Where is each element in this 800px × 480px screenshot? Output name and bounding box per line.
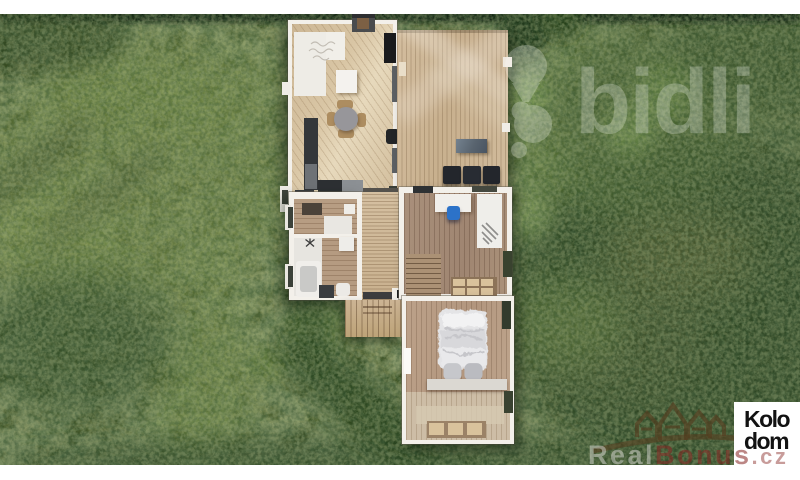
- svg-text:RealBonus.cz: RealBonus.cz: [588, 440, 788, 470]
